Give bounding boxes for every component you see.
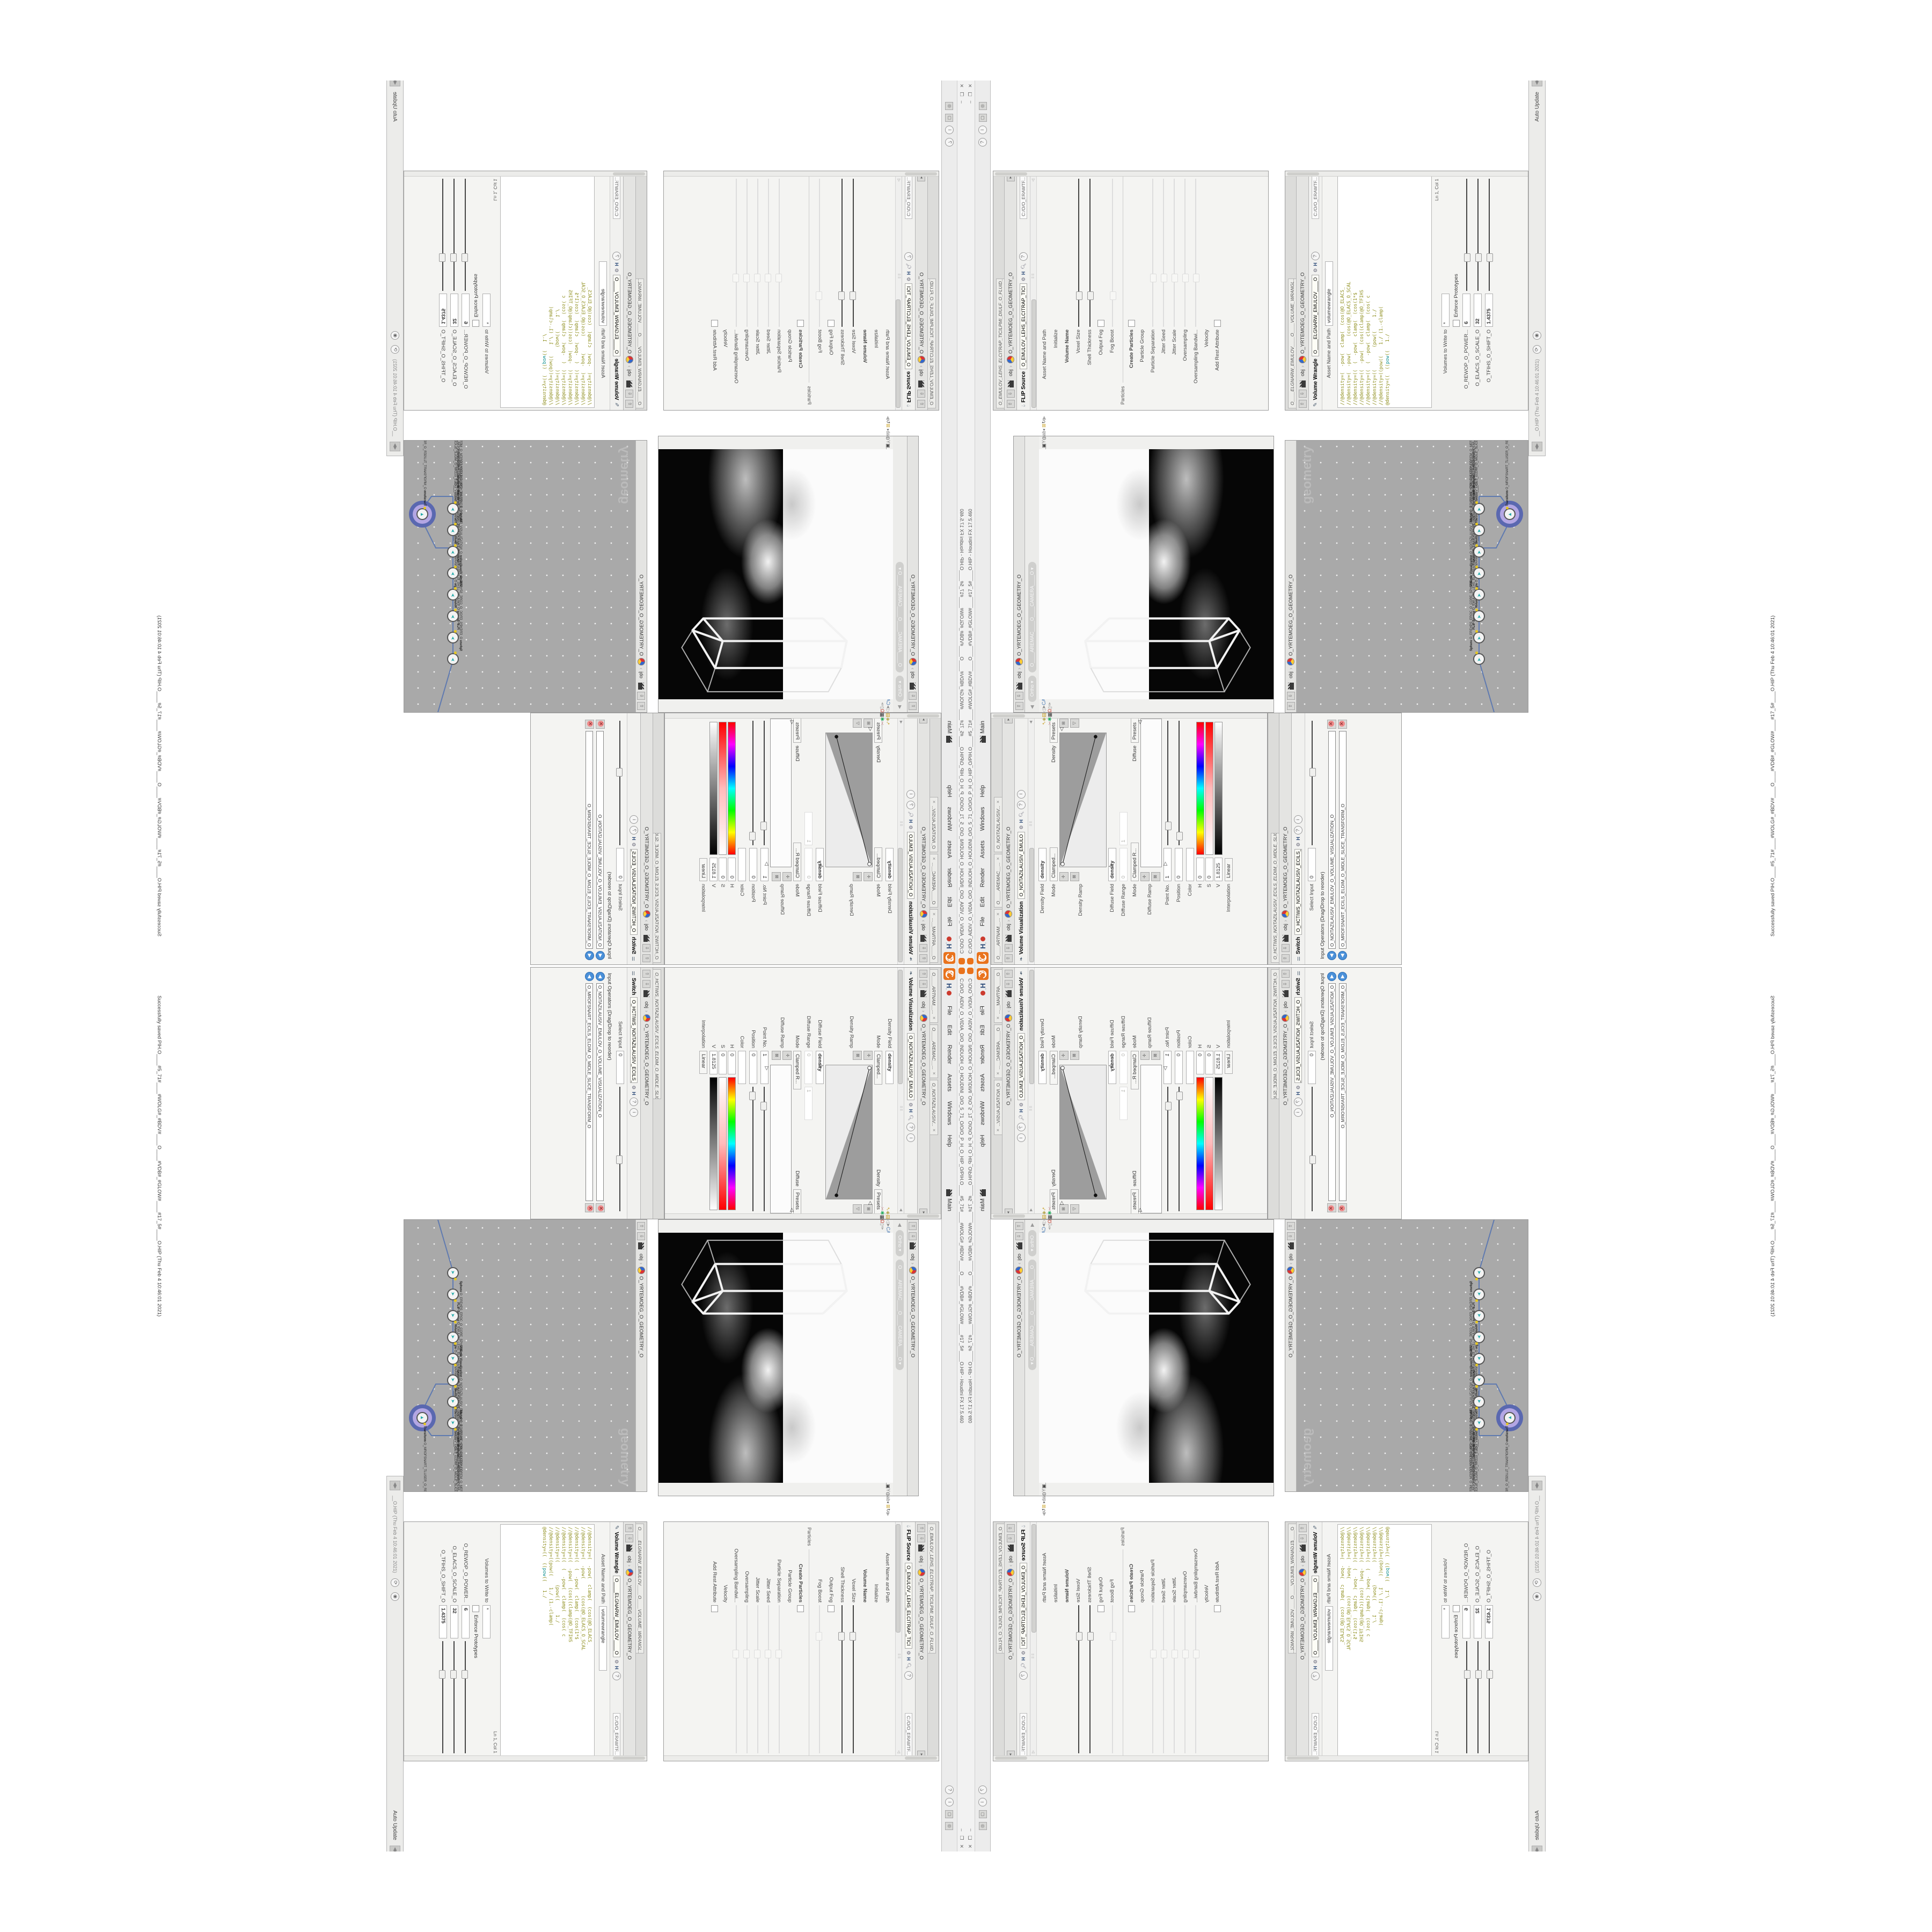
arrow-up-icon[interactable]: ⇧: [920, 970, 928, 978]
param-slider[interactable]: [1078, 1605, 1079, 1753]
arrow-up-icon[interactable]: ⇧: [1282, 954, 1290, 962]
context-tab[interactable]: obj: [1300, 1556, 1306, 1563]
help-icon[interactable]: ?: [978, 1785, 987, 1794]
arrow-down-icon[interactable]: ⇩: [918, 1534, 926, 1542]
param-slider[interactable]: [757, 1605, 758, 1753]
pane-tab[interactable]: O____ARTNAM__...✕: [994, 969, 1002, 1023]
density-ramp-widget[interactable]: ◁ △: [825, 733, 873, 867]
i-icon[interactable]: i: [1017, 790, 1026, 799]
ramp-add-point-icon[interactable]: ✛: [1059, 872, 1069, 881]
info-icon[interactable]: i: [945, 1798, 954, 1806]
viewport-tool-icon[interactable]: ✂: [880, 721, 885, 726]
houdini-help-icon[interactable]: H: [1021, 1657, 1026, 1661]
menu-item[interactable]: Render: [946, 863, 953, 892]
viewport-tool-icon[interactable]: ✱: [1047, 1211, 1052, 1215]
gear-icon[interactable]: ⚙: [631, 1085, 637, 1089]
interpolation-dropdown[interactable]: Linear: [1225, 858, 1233, 881]
houdini-help-icon[interactable]: H: [631, 837, 636, 840]
ramp-flip-icon[interactable]: ▽: [853, 719, 862, 728]
gear-icon[interactable]: ⚙: [1019, 1102, 1024, 1107]
network-node[interactable]: ➤: [1473, 1289, 1485, 1300]
viewport-display-icon[interactable]: ▶: [885, 416, 891, 420]
param-slider[interactable]: [779, 1605, 780, 1753]
context-tab[interactable]: obj: [627, 369, 633, 376]
viewport-display-icon[interactable]: ▣: [885, 1484, 891, 1489]
houdini-help-icon[interactable]: H: [1019, 1109, 1024, 1113]
viewport-display-icon[interactable]: ▣: [1041, 1484, 1046, 1489]
question-icon[interactable]: ?: [630, 1097, 638, 1106]
value-slider[interactable]: [1214, 1077, 1223, 1210]
geometry-tab[interactable]: O_YRTEMOEG_O_GEOMETRY_O: [1283, 1024, 1289, 1106]
asset-path-field[interactable]: C:/O/O_ERAWTF...: [905, 1713, 912, 1758]
ortho-selector[interactable]: Ortho ▾: [896, 1230, 904, 1257]
saturation-field[interactable]: 0: [719, 1051, 727, 1074]
houdini-help-icon[interactable]: H: [908, 1109, 913, 1113]
sync-icon[interactable]: ⟳: [1533, 345, 1541, 354]
param-field[interactable]: 32: [450, 1605, 458, 1638]
context-tab[interactable]: obj: [1008, 1556, 1014, 1563]
viewport-tool-icon[interactable]: Ω: [1047, 709, 1052, 713]
input-operator-row[interactable]: ◀ O_NOITAZILAUSIV_EMULOV_O_VOLUME_VISUAL…: [1327, 720, 1336, 960]
remove-input-icon[interactable]: [585, 720, 594, 729]
ramp-slider-icon[interactable]: ▷: [764, 1066, 770, 1070]
point-no-slider[interactable]: [764, 721, 765, 845]
arrow-down-icon[interactable]: ⇩: [1015, 1232, 1023, 1240]
close-tab-icon[interactable]: ✕: [996, 1129, 1000, 1132]
value-field[interactable]: 1.8125: [1214, 1051, 1223, 1074]
viewport-display-icon[interactable]: ▣: [885, 443, 891, 448]
network-node[interactable]: ▲: [416, 508, 428, 520]
remove-input-icon[interactable]: [1327, 1203, 1336, 1212]
pane-scrollbar[interactable]: [1285, 171, 1528, 177]
param-slider[interactable]: [1112, 1605, 1113, 1753]
network-node[interactable]: ➤: [1473, 1331, 1485, 1343]
value-field[interactable]: 1.8125: [1214, 858, 1223, 881]
prev-icon[interactable]: ◀: [897, 1223, 903, 1227]
viewport-display-icon[interactable]: ab: [1041, 430, 1046, 436]
close-tab-icon[interactable]: ✕: [996, 912, 1000, 916]
network-node[interactable]: ➤: [1473, 1417, 1485, 1429]
geometry-tab[interactable]: O_YRTEMOEG_O_GEOMETRY_O: [1006, 1024, 1012, 1106]
auto-update-selector[interactable]: Auto Update: [1534, 92, 1540, 122]
point-no-slider[interactable]: [1167, 1087, 1168, 1211]
pane-scrollbar[interactable]: [404, 171, 647, 177]
question-icon[interactable]: ?: [906, 1123, 915, 1131]
arrow-up-icon[interactable]: ⇧: [1007, 1524, 1015, 1532]
pane-scrollbar[interactable]: [993, 171, 1268, 177]
maximize-icon[interactable]: ❐: [959, 92, 965, 97]
arrow-up-icon[interactable]: ⇧: [638, 1222, 646, 1230]
param-field[interactable]: 1.4375: [1485, 1605, 1493, 1638]
arrow-up-icon[interactable]: ⇧: [1015, 702, 1023, 710]
select-input-field[interactable]: 0: [616, 1051, 624, 1084]
viewport-display-icon[interactable]: ◍: [885, 1492, 891, 1496]
asset-path-field[interactable]: C:/O/O_ERAWTF...: [1020, 174, 1027, 219]
ramp-add-point-icon[interactable]: ✛: [1059, 1051, 1069, 1060]
param-field[interactable]: 32: [450, 294, 458, 327]
houdini-help-icon[interactable]: H: [631, 1092, 636, 1095]
select-input-field[interactable]: 0: [1308, 1051, 1316, 1084]
remove-input-icon[interactable]: [1327, 720, 1336, 729]
gear-icon[interactable]: ⚙: [1021, 277, 1027, 281]
gear-icon[interactable]: ⚙: [614, 268, 620, 273]
volumes-field[interactable]: *: [482, 1605, 491, 1638]
diffuse-range-min[interactable]: 0: [1119, 848, 1128, 881]
houdini-help-icon[interactable]: H: [1313, 262, 1318, 266]
network-node[interactable]: ➤: [1473, 632, 1485, 643]
viewport-tool-icon[interactable]: ▤: [885, 713, 891, 718]
desktop-selector[interactable]: Main: [946, 721, 953, 734]
asset-name-field[interactable]: volumewrangle: [1325, 261, 1333, 326]
arrow-up-icon[interactable]: ⇧: [643, 954, 651, 962]
ramp-marker-icon[interactable]: ◁: [867, 1201, 873, 1205]
diffuse-mode-dropdown[interactable]: Clamped R...: [793, 843, 801, 881]
ramp-delete-point-icon[interactable]: ⊠: [1070, 1051, 1079, 1060]
param-checkbox[interactable]: [1214, 1605, 1221, 1612]
prev-icon[interactable]: ◀: [1029, 705, 1035, 709]
geometry-tab[interactable]: O_YRTEMOEG_O_GEOMETRY_O: [1283, 826, 1289, 908]
network-node[interactable]: ▲: [1504, 508, 1516, 520]
question-icon[interactable]: ?: [1017, 801, 1026, 809]
param-slider[interactable]: [768, 1605, 769, 1753]
diffuse-range-max[interactable]: 1: [1119, 812, 1128, 845]
node-name-field[interactable]: O_NOITAZILAUSIV_EMULO: [1018, 1033, 1025, 1101]
network-node[interactable]: ➤: [447, 589, 459, 601]
collapse-right-icon[interactable]: ◀▶: [390, 80, 400, 86]
magnifier-icon[interactable]: 🔍︎: [906, 1663, 912, 1668]
question-icon[interactable]: ?: [612, 1672, 621, 1680]
arrow-down-icon[interactable]: ⇩: [1287, 1232, 1295, 1240]
ramp-slider-icon[interactable]: ▷: [1162, 862, 1168, 866]
network-node[interactable]: ▲: [1504, 1412, 1516, 1424]
arrow-down-icon[interactable]: ⇩: [1299, 1534, 1307, 1542]
viewport-tool-icon[interactable]: ➴: [885, 721, 891, 726]
input-operator-row[interactable]: ◀ O_MROFSNART_ECILS_ELDIM_O_MIDLE_SLICE_…: [1338, 720, 1347, 960]
network-node[interactable]: ➤: [447, 567, 459, 579]
question-icon[interactable]: ?: [1294, 1097, 1302, 1106]
pane-tab[interactable]: O_HCTIWS_NOITAZILAUSIV_ECILS_ELDIM_O_MID…: [1271, 833, 1279, 963]
pane-tab[interactable]: O____AREMAC__...✕: [930, 854, 938, 908]
param-slider[interactable]: [465, 1641, 466, 1753]
pane-target-icon[interactable]: ◎: [946, 102, 954, 110]
network-node[interactable]: ▲: [416, 1412, 428, 1424]
param-slider[interactable]: [1477, 1641, 1479, 1753]
param-slider[interactable]: [747, 179, 748, 327]
param-slider[interactable]: [747, 1605, 748, 1753]
pane-tab[interactable]: O____ELGNARW_EMULOV____O____VOLUME_WRANG…: [1288, 279, 1296, 408]
context-tab[interactable]: obj: [1006, 924, 1012, 931]
network-node[interactable]: ➤: [447, 1267, 459, 1279]
auto-update-selector[interactable]: Auto Update: [392, 92, 398, 122]
viewport-tool-icon[interactable]: Ω: [880, 709, 885, 713]
ramp-delete-point-icon[interactable]: ⊠: [1151, 1051, 1160, 1060]
pane-tab[interactable]: O_EMULOV_LEHS_ELCITRAP_TICILPMI_DIULF_O_…: [928, 1524, 936, 1653]
viewport-tool-icon[interactable]: ✑: [1047, 1226, 1052, 1230]
houdini-help-icon[interactable]: H: [1313, 1666, 1318, 1670]
viewport-tool-icon[interactable]: ✑: [880, 1226, 885, 1230]
context-tab[interactable]: obj: [921, 1001, 927, 1008]
color-swatch[interactable]: [1186, 848, 1194, 881]
arrow-up-icon[interactable]: ⇧: [920, 954, 928, 962]
question-icon[interactable]: ?: [630, 826, 638, 835]
gear-icon[interactable]: ⚙: [908, 825, 914, 830]
viewport-display-icon[interactable]: ▶: [885, 1512, 891, 1516]
close-tab-icon[interactable]: ✕: [996, 1072, 1000, 1075]
arrow-up-icon[interactable]: ⇧: [1282, 970, 1290, 978]
pane-scrollbar[interactable]: [404, 1755, 647, 1761]
viewport-display-icon[interactable]: ◍: [1041, 1492, 1046, 1496]
ramp-marker-icon[interactable]: ◁: [1137, 1208, 1143, 1212]
info-icon[interactable]: i: [978, 1798, 987, 1806]
diffuse-range-max[interactable]: 1: [1119, 1087, 1128, 1120]
diffuse-range-min[interactable]: 0: [804, 1051, 813, 1084]
gear-icon[interactable]: ⚙: [1296, 1085, 1301, 1089]
pane-tab[interactable]: O____AREMAC__...✕: [994, 1024, 1002, 1078]
arrow-up-icon[interactable]: ⇧: [1005, 970, 1013, 978]
network-node[interactable]: ➤: [1473, 1353, 1485, 1365]
value-field[interactable]: 1.8125: [709, 1051, 718, 1074]
asset-name-field[interactable]: volumewrangle: [599, 1606, 607, 1671]
param-slider[interactable]: [1152, 179, 1153, 327]
menu-item[interactable]: Windows: [946, 802, 953, 836]
hue-slider[interactable]: [728, 722, 736, 855]
pane-maximize-icon[interactable]: ▢: [979, 114, 987, 122]
arrow-up-icon[interactable]: ⇧: [1015, 1222, 1023, 1230]
network-node[interactable]: ➤: [447, 610, 459, 622]
magnifier-icon[interactable]: 🔍︎: [906, 263, 912, 269]
param-slider[interactable]: [1195, 1605, 1196, 1753]
hue-slider[interactable]: [1196, 1077, 1204, 1210]
houdini-help-icon[interactable]: H: [906, 1657, 911, 1661]
param-slider[interactable]: [1163, 179, 1164, 327]
node-name-field[interactable]: O_EMULOV_LEHS_ELCITRAP_TICI: [1020, 1563, 1027, 1649]
close-tab-icon[interactable]: ✕: [996, 800, 1000, 803]
memory-icon[interactable]: ◉: [1533, 1592, 1541, 1601]
pane-scroll-strip[interactable]: ⠿⠿◀▷: [1028, 713, 1035, 964]
select-input-slider[interactable]: [1312, 721, 1313, 845]
param-slider[interactable]: [1089, 179, 1091, 327]
viewport-3d-view[interactable]: [1039, 1233, 1274, 1483]
param-slider[interactable]: [819, 1605, 821, 1753]
viewport-tool-icon[interactable]: ✱: [880, 717, 885, 721]
memory-icon[interactable]: ◉: [391, 1592, 399, 1601]
ramp-delete-point-icon[interactable]: ⊠: [853, 872, 862, 881]
ramp-slider-icon[interactable]: △: [1108, 865, 1114, 868]
density-mode-dropdown[interactable]: Clamped...: [1050, 847, 1058, 881]
network-node[interactable]: ➤: [1473, 567, 1485, 579]
gear-icon[interactable]: ⚙: [1296, 843, 1301, 847]
arrow-down-icon[interactable]: ⇩: [638, 692, 646, 700]
geometry-tab[interactable]: O_YRTEMOEG_O_GEOMETRY_O: [919, 272, 925, 354]
geometry-tab[interactable]: O_YRTEMOEG_O_GEOMETRY_O: [919, 1578, 925, 1660]
info-icon[interactable]: i: [978, 126, 987, 134]
network-node[interactable]: ➤: [1473, 589, 1485, 601]
viewport-display-icon[interactable]: ▣: [1041, 443, 1046, 448]
density-field-value[interactable]: density: [885, 848, 894, 881]
geometry-tab[interactable]: O_YRTEMOEG_O_GEOMETRY_O: [1300, 1578, 1306, 1660]
param-field[interactable]: 32: [1474, 1605, 1482, 1638]
density-mode-dropdown[interactable]: Clamped...: [1050, 1051, 1058, 1085]
remove-input-icon[interactable]: [1338, 1203, 1347, 1212]
density-field-value[interactable]: density: [1038, 1051, 1046, 1084]
viewport-tool-icon[interactable]: CA: [885, 698, 891, 705]
pane-tab[interactable]: O____ELGNARW_EMULOV____O____VOLUME_WRANG…: [636, 279, 644, 408]
ramp-add-point-icon[interactable]: ✛: [863, 872, 873, 881]
viewport-display-icon[interactable]: ab: [1041, 1496, 1046, 1502]
viewport-tool-icon[interactable]: ◁: [1041, 709, 1046, 713]
menu-item[interactable]: Help: [979, 1130, 986, 1152]
density-field-value[interactable]: density: [1038, 848, 1046, 881]
help-icon[interactable]: ?: [978, 138, 987, 147]
param-slider[interactable]: [1195, 179, 1196, 327]
param-slider[interactable]: [842, 179, 843, 327]
point-no-slider[interactable]: [1167, 721, 1168, 845]
prev-icon[interactable]: ◀: [1029, 1223, 1035, 1227]
asset-path-field[interactable]: C:/O/O_ERAWTF...: [1312, 174, 1319, 219]
param-slider[interactable]: [757, 179, 758, 327]
menu-item[interactable]: Help: [946, 1130, 953, 1152]
position-slider[interactable]: [1179, 721, 1180, 845]
viewport-tool-icon[interactable]: ▤: [1041, 1214, 1046, 1219]
param-slider[interactable]: [736, 179, 737, 327]
network-canvas[interactable]: geometry ➤Sphere O_EREHPS_EROC_O_CORE_SP…: [404, 441, 635, 712]
network-node[interactable]: ➤: [1473, 546, 1485, 558]
menu-item[interactable]: Render: [979, 1040, 986, 1069]
ramp-delete-point-icon[interactable]: ⊠: [772, 1051, 781, 1060]
param-checkbox[interactable]: [828, 320, 835, 327]
magnifier-icon[interactable]: 🔍︎: [908, 1115, 914, 1121]
node-name-field[interactable]: O_HCTIWS_NOITAZILAUSIV_ECILS_EL: [630, 997, 638, 1083]
param-slider[interactable]: [1089, 1605, 1091, 1753]
param-slider[interactable]: [1489, 179, 1490, 291]
menu-item[interactable]: Windows: [946, 1096, 953, 1130]
enforce-prototypes-checkbox[interactable]: [473, 320, 480, 327]
node-name-field[interactable]: O_NOITAZILAUSIV_EMULO: [1018, 832, 1025, 899]
info-icon[interactable]: i: [945, 126, 954, 134]
asset-name-field[interactable]: volumewrangle: [599, 261, 607, 326]
pane-target-icon[interactable]: ◎: [979, 102, 987, 110]
arrow-up-icon[interactable]: ⇧: [909, 702, 917, 710]
geometry-tab[interactable]: O_YRTEMOEG_O_GEOMETRY_O: [1016, 1276, 1022, 1358]
interpolation-dropdown[interactable]: Linear: [699, 1051, 707, 1074]
viewport-display-icon[interactable]: ⊞: [885, 1504, 891, 1509]
gear-icon[interactable]: ⚙: [1313, 268, 1319, 273]
geometry-tab[interactable]: O_YRTEMOEG_O_GEOMETRY_O: [1288, 574, 1294, 656]
houdini-help-icon[interactable]: H: [1296, 837, 1301, 840]
menu-item[interactable]: Assets: [979, 836, 986, 863]
param-slider[interactable]: [1477, 179, 1479, 291]
param-slider[interactable]: [1163, 1605, 1164, 1753]
arrow-up-icon[interactable]: ⇧: [626, 400, 634, 408]
param-slider[interactable]: [1152, 1605, 1153, 1753]
value-field[interactable]: 1.8125: [709, 858, 718, 881]
arrow-down-icon[interactable]: ⇩: [920, 944, 928, 952]
magnifier-icon[interactable]: 🔍︎: [908, 811, 914, 817]
param-checkbox[interactable]: [797, 320, 804, 327]
prev-icon[interactable]: ◀: [897, 705, 903, 709]
diffuse-range-min[interactable]: 0: [1119, 1051, 1128, 1084]
network-node[interactable]: ➤: [1473, 1310, 1485, 1322]
pane-tab[interactable]: O_HCTIWS_NOITAZILAUSIV_ECILS_ELDIM_O_MID…: [653, 969, 661, 1099]
magnifier-icon[interactable]: 🔍︎: [1019, 1115, 1024, 1121]
param-slider[interactable]: [1174, 179, 1175, 327]
question-icon[interactable]: ?: [904, 1671, 913, 1680]
geometry-tab[interactable]: O_YRTEMOEG_O_GEOMETRY_O: [1008, 272, 1014, 354]
pane-scroll-strip[interactable]: ⠿⠿◁▶: [895, 1522, 902, 1761]
gear-icon[interactable]: ⚙: [1021, 1651, 1027, 1655]
context-tab[interactable]: obj: [644, 1001, 650, 1008]
viewport-display-icon[interactable]: ◐: [885, 428, 891, 430]
geometry-tab[interactable]: O_YRTEMOEG_O_GEOMETRY_O: [910, 574, 916, 656]
sync-icon[interactable]: ⟳: [391, 1578, 399, 1587]
gear-icon[interactable]: ⚙: [1019, 825, 1024, 830]
context-tab[interactable]: obj: [1300, 369, 1306, 376]
ramp-marker-icon[interactable]: ◁: [1137, 720, 1143, 724]
viewport-display-icon[interactable]: Y: [885, 440, 891, 443]
pane-target-icon[interactable]: ◎: [946, 1822, 954, 1830]
position-slider[interactable]: [753, 721, 754, 845]
ramp-add-point-icon[interactable]: ✛: [782, 872, 792, 881]
volumes-field[interactable]: *: [482, 294, 491, 327]
arrow-down-icon[interactable]: ⇩: [643, 944, 651, 952]
question-icon[interactable]: ?: [1019, 1671, 1028, 1680]
enforce-prototypes-checkbox[interactable]: [1453, 1605, 1460, 1612]
arrow-down-icon[interactable]: ⇩: [643, 980, 651, 988]
arrow-up-icon[interactable]: ⇧: [909, 1222, 917, 1230]
density-ramp-widget[interactable]: ◁ △: [825, 1065, 873, 1199]
geometry-tab[interactable]: O_YRTEMOEG_O_GEOMETRY_O: [639, 574, 645, 656]
question-icon[interactable]: ?: [1294, 826, 1302, 835]
arrow-down-icon[interactable]: ⇩: [1015, 692, 1023, 700]
pane-scroll-strip[interactable]: ⠿⠿◁▶: [1030, 171, 1037, 410]
context-tab[interactable]: obj: [639, 671, 645, 678]
diffuse-ramp-widget[interactable]: ◁ ▷: [1140, 1065, 1162, 1213]
viewport-tool-icon[interactable]: ▤: [885, 1214, 891, 1219]
viewport-tool-icon[interactable]: ▤: [1041, 713, 1046, 718]
ramp-flip-icon[interactable]: ▽: [1070, 1204, 1079, 1213]
viewport-tool-icon[interactable]: ◁: [885, 709, 891, 713]
viewport-tool-icon[interactable]: ◁: [885, 1219, 891, 1223]
param-checkbox[interactable]: [797, 1605, 804, 1612]
arrow-up-icon[interactable]: ⇧: [1299, 1524, 1307, 1532]
param-slider[interactable]: [1184, 1605, 1185, 1753]
close-tab-icon[interactable]: ✕: [932, 1129, 936, 1132]
diffuse-mode-dropdown[interactable]: Clamped R...: [1131, 1051, 1139, 1089]
network-node[interactable]: ➤: [447, 1310, 459, 1322]
close-tab-icon[interactable]: ✕: [932, 912, 936, 916]
magnifier-icon[interactable]: 🔍︎: [1021, 1663, 1027, 1668]
node-name-field[interactable]: O____ELGNARW_EMULOV____O: [1312, 275, 1319, 356]
collapse-left-icon[interactable]: ◀▶: [390, 442, 400, 451]
context-tab[interactable]: obj: [1016, 1254, 1022, 1261]
saturation-field[interactable]: 0: [719, 858, 727, 881]
node-name-field[interactable]: O____ELGNARW_EMULOV____O: [613, 275, 620, 356]
pane-target-icon[interactable]: ◎: [979, 1822, 987, 1830]
arrow-down-icon[interactable]: ⇩: [920, 980, 928, 988]
param-slider[interactable]: [1466, 1641, 1467, 1753]
volumes-field[interactable]: *: [1441, 294, 1450, 327]
collapse-left-icon[interactable]: ◀▶: [390, 1481, 400, 1490]
close-tab-icon[interactable]: ✕: [996, 857, 1000, 860]
network-node[interactable]: ➤: [447, 1353, 459, 1365]
geometry-tab[interactable]: O_YRTEMOEG_O_GEOMETRY_O: [910, 1276, 916, 1358]
collapse-left-icon[interactable]: ◀▶: [1532, 442, 1542, 451]
question-icon[interactable]: ?: [906, 801, 915, 809]
select-input-slider[interactable]: [620, 721, 621, 845]
param-field[interactable]: 6: [462, 294, 470, 327]
pane-tab[interactable]: O_EMULOV_LEHS_ELCITRAP_TICILPMI_DIULF_O_…: [928, 279, 936, 408]
arrow-down-icon[interactable]: ⇩: [1005, 944, 1013, 952]
